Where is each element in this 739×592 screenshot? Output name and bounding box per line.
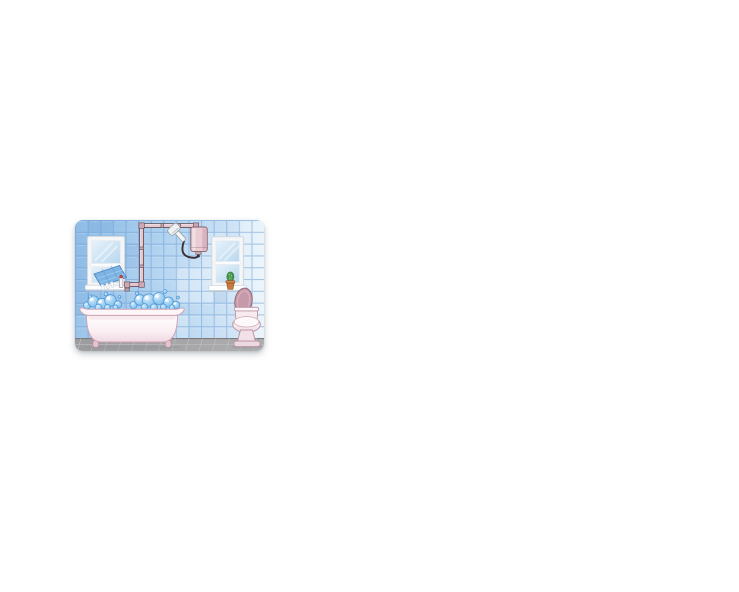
bathroom-scene — [75, 220, 264, 351]
toilet-seat — [234, 317, 259, 327]
plant-pot — [227, 283, 234, 289]
bathroom-illustration — [75, 220, 264, 351]
tub-rim — [80, 308, 184, 315]
toilet-base — [234, 341, 260, 347]
dispenser-cap — [120, 275, 123, 278]
toilet-pedestal — [238, 330, 256, 342]
heater-nozzle — [196, 252, 201, 255]
soap-dispenser — [119, 275, 123, 287]
plant-pot-rim — [226, 281, 235, 283]
cactus-plant — [226, 272, 235, 289]
heater-valve — [197, 255, 200, 258]
toilet-tank-lid — [234, 307, 258, 311]
